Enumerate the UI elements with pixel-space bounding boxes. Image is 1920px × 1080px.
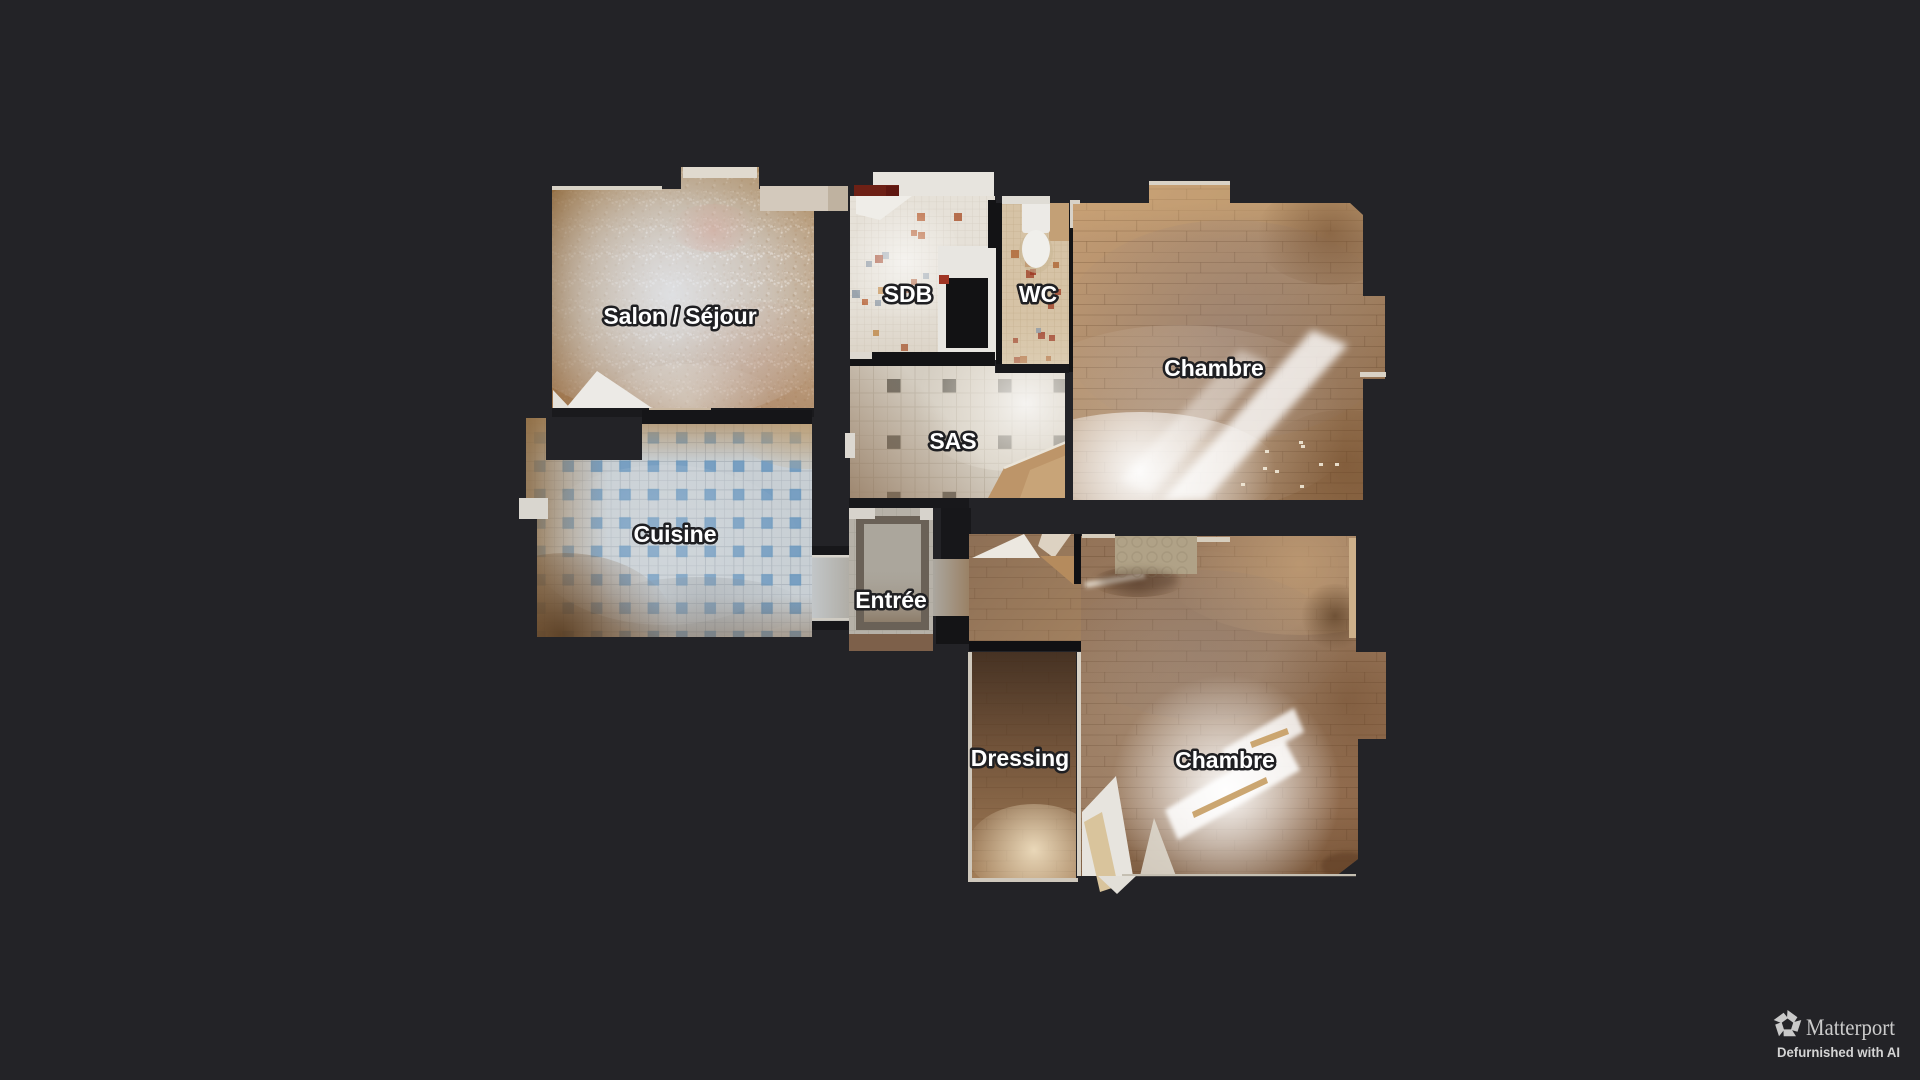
svg-text:Entrée: Entrée (855, 587, 927, 613)
svg-text:Chambre: Chambre (1175, 747, 1275, 773)
svg-text:SDB: SDB (884, 281, 933, 307)
svg-text:WC: WC (1019, 281, 1057, 307)
svg-text:SAS: SAS (929, 428, 976, 454)
svg-text:Chambre: Chambre (1164, 355, 1264, 381)
svg-text:Defurnished with AI: Defurnished with AI (1777, 1045, 1900, 1060)
svg-text:Matterport: Matterport (1806, 1015, 1896, 1040)
svg-text:Cuisine: Cuisine (633, 521, 716, 547)
svg-text:Dressing: Dressing (971, 745, 1069, 771)
svg-text:Salon / Séjour: Salon / Séjour (603, 303, 756, 329)
